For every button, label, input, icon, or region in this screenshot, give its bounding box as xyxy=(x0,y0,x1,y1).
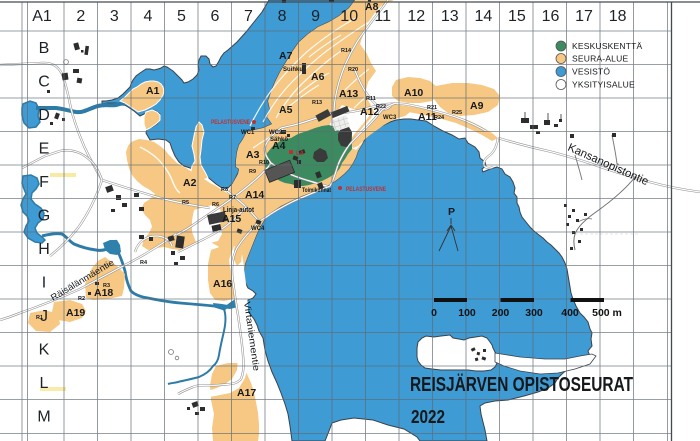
svg-text:WC3: WC3 xyxy=(383,115,397,121)
svg-text:PELASTUSVENE: PELASTUSVENE xyxy=(211,120,250,126)
svg-text:A1: A1 xyxy=(146,85,160,97)
svg-text:15: 15 xyxy=(508,8,526,25)
svg-text:R2: R2 xyxy=(78,296,85,302)
svg-text:R5: R5 xyxy=(182,200,189,206)
svg-text:12: 12 xyxy=(407,8,425,25)
svg-text:R11: R11 xyxy=(366,96,376,102)
svg-text:C: C xyxy=(38,74,50,91)
svg-text:A9: A9 xyxy=(470,100,484,112)
svg-text:3: 3 xyxy=(110,8,119,25)
svg-text:2: 2 xyxy=(76,8,85,25)
svg-text:16: 16 xyxy=(542,8,560,25)
svg-text:LA: LA xyxy=(296,151,305,157)
svg-text:G: G xyxy=(38,208,50,225)
svg-text:D: D xyxy=(38,107,50,124)
svg-text:A5: A5 xyxy=(279,104,293,116)
svg-text:R22: R22 xyxy=(376,104,386,110)
svg-text:REISJÄRVEN OPISTOSEURAT: REISJÄRVEN OPISTOSEURAT xyxy=(410,373,633,396)
svg-text:R20: R20 xyxy=(348,67,358,73)
svg-text:100: 100 xyxy=(458,307,476,319)
svg-text:7: 7 xyxy=(244,8,253,25)
svg-text:R14: R14 xyxy=(341,48,352,54)
svg-text:B: B xyxy=(39,40,50,57)
svg-text:A7: A7 xyxy=(279,50,293,62)
svg-text:A13: A13 xyxy=(339,88,358,100)
svg-text:P: P xyxy=(448,206,455,218)
svg-text:R10: R10 xyxy=(259,160,269,166)
svg-text:8: 8 xyxy=(278,8,287,25)
svg-text:A2: A2 xyxy=(183,177,197,189)
svg-text:400: 400 xyxy=(561,307,579,319)
svg-text:9: 9 xyxy=(311,8,320,25)
svg-text:R25: R25 xyxy=(452,110,462,116)
svg-text:KESKUSKENTTÄ: KESKUSKENTTÄ xyxy=(572,41,643,51)
svg-text:R7: R7 xyxy=(229,195,236,201)
svg-text:R6: R6 xyxy=(212,202,219,208)
svg-text:10: 10 xyxy=(340,8,358,25)
svg-text:200: 200 xyxy=(492,307,510,319)
svg-text:R8: R8 xyxy=(221,187,228,193)
svg-text:SEURA-ALUE: SEURA-ALUE xyxy=(572,54,628,64)
svg-text:17: 17 xyxy=(575,8,593,25)
svg-text:5: 5 xyxy=(177,8,186,25)
svg-text:R21: R21 xyxy=(427,105,437,111)
svg-text:YKSITYISALUE: YKSITYISALUE xyxy=(572,80,635,90)
svg-text:300: 300 xyxy=(525,307,543,319)
svg-text:A14: A14 xyxy=(245,189,264,201)
svg-text:500 m: 500 m xyxy=(592,307,622,319)
svg-text:6: 6 xyxy=(211,8,220,25)
svg-text:A19: A19 xyxy=(66,307,85,319)
svg-text:Toimikunnat: Toimikunnat xyxy=(302,187,332,194)
svg-text:A10: A10 xyxy=(404,87,423,99)
svg-text:M: M xyxy=(37,409,50,426)
svg-text:A16: A16 xyxy=(213,278,232,290)
svg-text:R9: R9 xyxy=(249,169,256,175)
svg-text:R24: R24 xyxy=(434,115,445,121)
svg-text:13: 13 xyxy=(441,8,459,25)
svg-text:R13: R13 xyxy=(312,100,322,106)
svg-text:F: F xyxy=(39,174,49,191)
svg-text:Sähkö: Sähkö xyxy=(270,137,288,143)
svg-text:WC2: WC2 xyxy=(269,130,283,136)
svg-text:R4: R4 xyxy=(140,260,148,266)
svg-text:18: 18 xyxy=(609,8,627,25)
svg-text:Linja-autot: Linja-autot xyxy=(223,207,255,214)
svg-text:A8: A8 xyxy=(365,1,379,13)
svg-text:L: L xyxy=(40,375,49,392)
svg-text:R3: R3 xyxy=(103,283,110,289)
svg-text:WC4: WC4 xyxy=(251,226,265,232)
svg-text:A3: A3 xyxy=(246,149,260,161)
svg-text:I: I xyxy=(42,275,46,292)
svg-text:A15: A15 xyxy=(222,213,241,225)
svg-text:VESISTÖ: VESISTÖ xyxy=(572,67,610,77)
svg-text:E: E xyxy=(39,141,50,158)
svg-text:PELASTUSVENE: PELASTUSVENE xyxy=(346,187,386,193)
svg-text:0: 0 xyxy=(431,307,437,319)
svg-text:2022: 2022 xyxy=(411,407,445,427)
svg-text:14: 14 xyxy=(475,8,493,25)
svg-text:A1: A1 xyxy=(32,8,52,25)
svg-text:A6: A6 xyxy=(311,71,325,83)
svg-text:K: K xyxy=(39,342,50,359)
svg-text:Suihku: Suihku xyxy=(283,67,303,73)
svg-text:WC1: WC1 xyxy=(241,130,255,136)
svg-text:4: 4 xyxy=(143,8,152,25)
svg-text:H: H xyxy=(38,241,50,258)
svg-text:R1: R1 xyxy=(36,315,43,321)
svg-text:A17: A17 xyxy=(237,387,256,399)
